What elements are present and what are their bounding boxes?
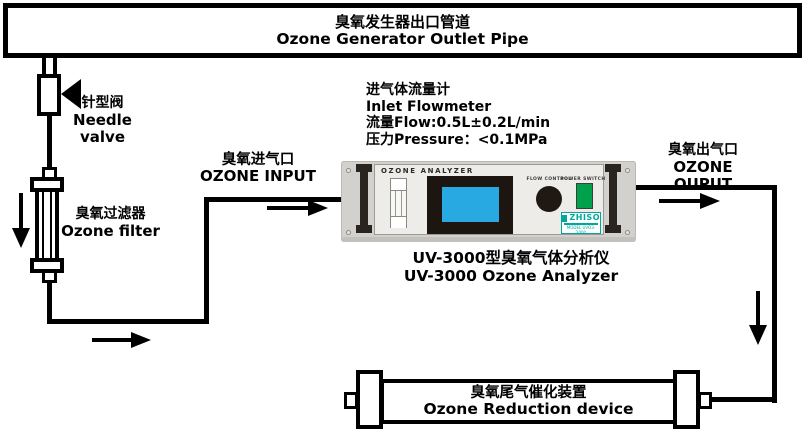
uv3000-ozone-analyzer-device: OZONE ANALYZER FLOW CONTROL POWER SWITCH… [341,161,636,242]
rotameter-bottom [391,216,406,228]
ozone-filter-label-en: Ozone filter [58,223,163,240]
reduction-device-right-cap [673,370,700,429]
screw-icon [625,230,630,235]
ozone-input-label: 臭氧进气口 OZONE INPUT [198,152,318,185]
pipe-bottom-horizontal [47,319,209,324]
analyzer-display [427,176,513,234]
reduction-device-left-connector [344,392,358,409]
zhiso-logo: ZHISO MODEL UVO3-3000 [561,212,601,234]
ozone-output-label-en: OZONE OUPUT [643,159,763,193]
reduction-device-label-en: Ozone Reduction device [423,401,633,418]
inlet-note-line2: Inlet Flowmeter [366,99,550,116]
zhiso-logo-icon [562,215,567,222]
zhiso-brand-text: ZHISO [569,214,600,222]
pipe-to-reduction-device [710,397,777,402]
rotameter-top [391,179,406,191]
rotameter-tube [395,191,402,216]
filter-bottom-connector [42,270,57,283]
analyzer-front-panel: OZONE ANALYZER FLOW CONTROL POWER SWITCH… [374,164,604,235]
needle-valve-label-en: Needle valve [50,112,155,146]
analyzer-caption: UV-3000型臭氧气体分析仪 UV-3000 Ozone Analyzer [386,250,636,285]
filter-body [35,189,59,261]
inlet-note-line4: 压力Pressure：<0.1MPa [366,132,550,149]
analyzer-panel-title: OZONE ANALYZER [381,167,474,175]
ozone-filter-label-zh: 臭氧过滤器 [58,207,163,223]
outlet-pipe-label-zh: 臭氧发生器出口管道 [335,14,470,31]
pipe-riser-to-input [204,197,209,324]
ozone-reduction-device: 臭氧尾气催化装置 Ozone Reduction device [380,379,677,424]
power-switch [576,183,593,209]
screw-icon [625,168,630,173]
inlet-flowmeter-note: 进气体流量计 Inlet Flowmeter 流量Flow:0.5L±0.2L/… [366,82,550,148]
ozone-generator-outlet-pipe: 臭氧发生器出口管道 Ozone Generator Outlet Pipe [3,3,802,58]
ozone-filter-label: 臭氧过滤器 Ozone filter [58,207,163,240]
outlet-pipe-label-en: Ozone Generator Outlet Pipe [276,31,528,48]
ozone-analyzer-flow-diagram: 臭氧发生器出口管道 Ozone Generator Outlet Pipe 针型… [0,0,807,433]
left-handle-icon [360,170,368,227]
left-handle-icon [356,225,372,233]
screw-icon [346,168,351,173]
power-switch-label: POWER SWITCH [555,177,611,182]
needle-valve-label: 针型阀 Needle valve [50,96,155,146]
inlet-note-line3: 流量Flow:0.5L±0.2L/min [366,115,550,132]
reduction-device-left-cap [356,370,383,429]
zhiso-model-text: MODEL UVO3-3000 [564,223,598,235]
filter-inner-tube [42,189,52,261]
pipe-output-down [772,185,777,403]
analyzer-lcd-screen [442,187,499,222]
analyzer-caption-en: UV-3000 Ozone Analyzer [386,268,636,286]
rotameter-flowtube [390,178,407,228]
reduction-device-right-connector [698,392,712,409]
inlet-note-line1: 进气体流量计 [366,82,550,99]
pipe-filter-down [47,282,52,324]
screw-icon [346,230,351,235]
ozone-input-label-zh: 臭氧进气口 [198,152,318,168]
flow-control-knob [536,186,562,212]
needle-valve-label-zh: 针型阀 [50,96,155,112]
filter-top-cap [30,177,64,192]
ozone-input-label-en: OZONE INPUT [198,168,318,185]
ozone-output-label-zh: 臭氧出气口 [643,143,763,159]
analyzer-caption-zh: UV-3000型臭氧气体分析仪 [386,250,636,268]
ozone-output-label: 臭氧出气口 OZONE OUPUT [643,143,763,193]
right-handle-icon [605,225,621,233]
reduction-device-label-zh: 臭氧尾气催化装置 [471,385,587,401]
